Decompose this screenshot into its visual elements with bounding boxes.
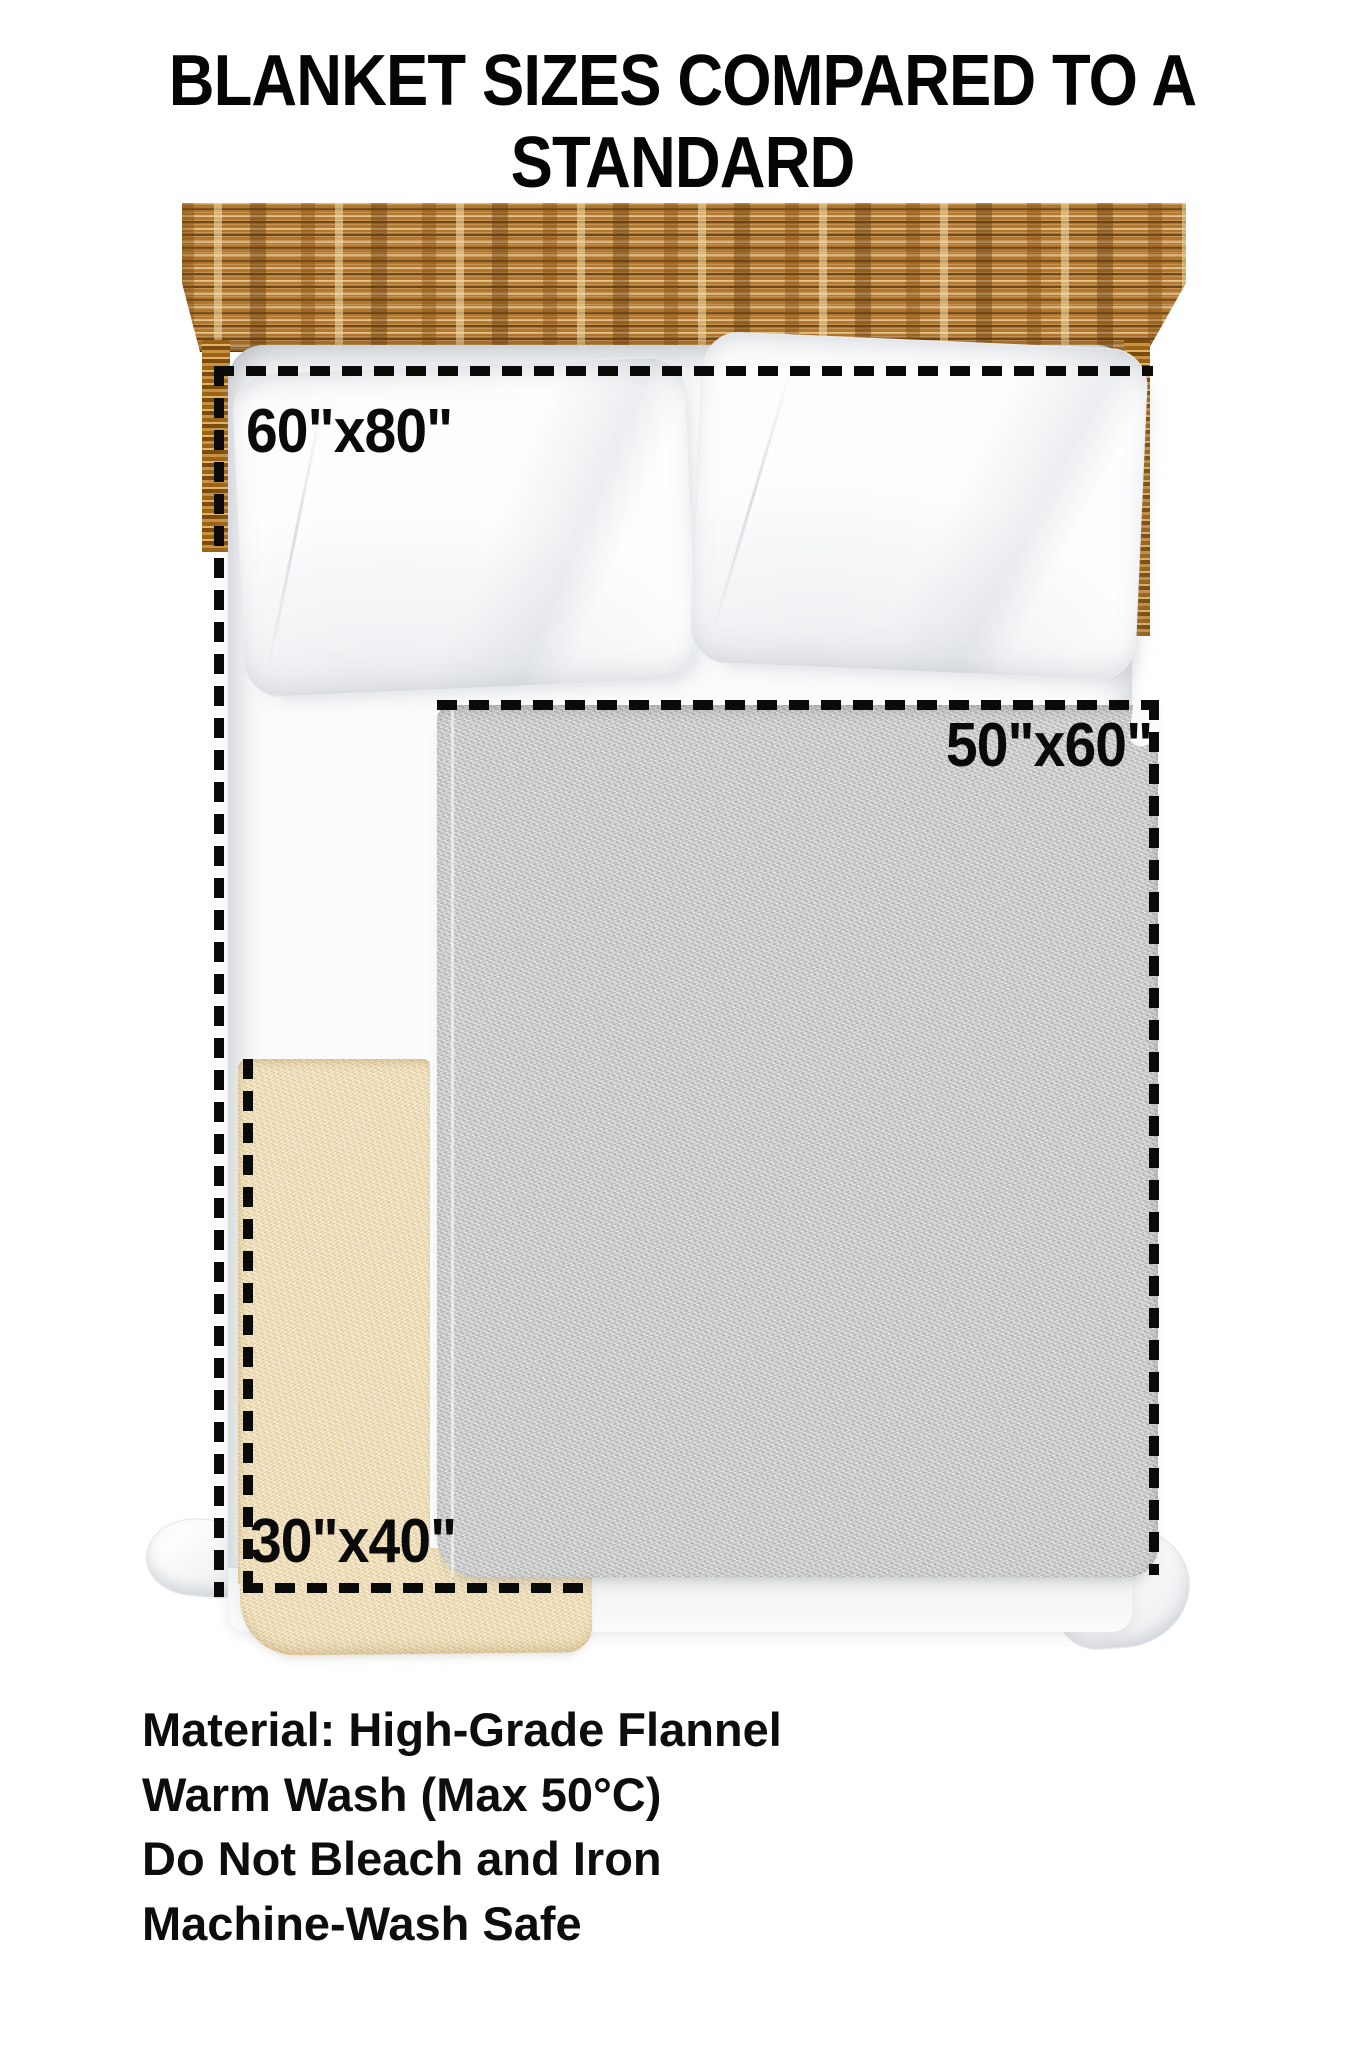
outline-60x80-left <box>214 366 224 1597</box>
care-instructions: Material: High-Grade Flannel Warm Wash (… <box>142 1698 782 1956</box>
care-line-material: Material: High-Grade Flannel <box>142 1698 782 1763</box>
care-line-machine-wash: Machine-Wash Safe <box>142 1892 782 1957</box>
bed-headboard <box>180 203 1188 353</box>
outline-50x60-top <box>437 700 1159 710</box>
size-label-60x80: 60"x80" <box>246 396 452 467</box>
outline-60x80-30x40-bottom <box>243 1583 593 1593</box>
blanket-50x60 <box>437 705 1158 1577</box>
size-label-50x60: 50"x60" <box>946 710 1152 781</box>
blanket-50x60-seam <box>451 705 454 1577</box>
care-line-bleach-iron: Do Not Bleach and Iron <box>142 1827 782 1892</box>
outline-50x60-right <box>1149 700 1159 1575</box>
size-label-30x40: 30"x40" <box>250 1506 456 1577</box>
care-line-wash-temp: Warm Wash (Max 50°C) <box>142 1763 782 1828</box>
outline-60x80-top <box>214 366 1153 376</box>
blanket-size-infographic: BLANKET SIZES COMPARED TO A STANDARD QUE… <box>0 0 1365 2048</box>
pillow-right <box>689 330 1149 681</box>
page-title-line1: BLANKET SIZES COMPARED TO A STANDARD <box>82 40 1283 204</box>
